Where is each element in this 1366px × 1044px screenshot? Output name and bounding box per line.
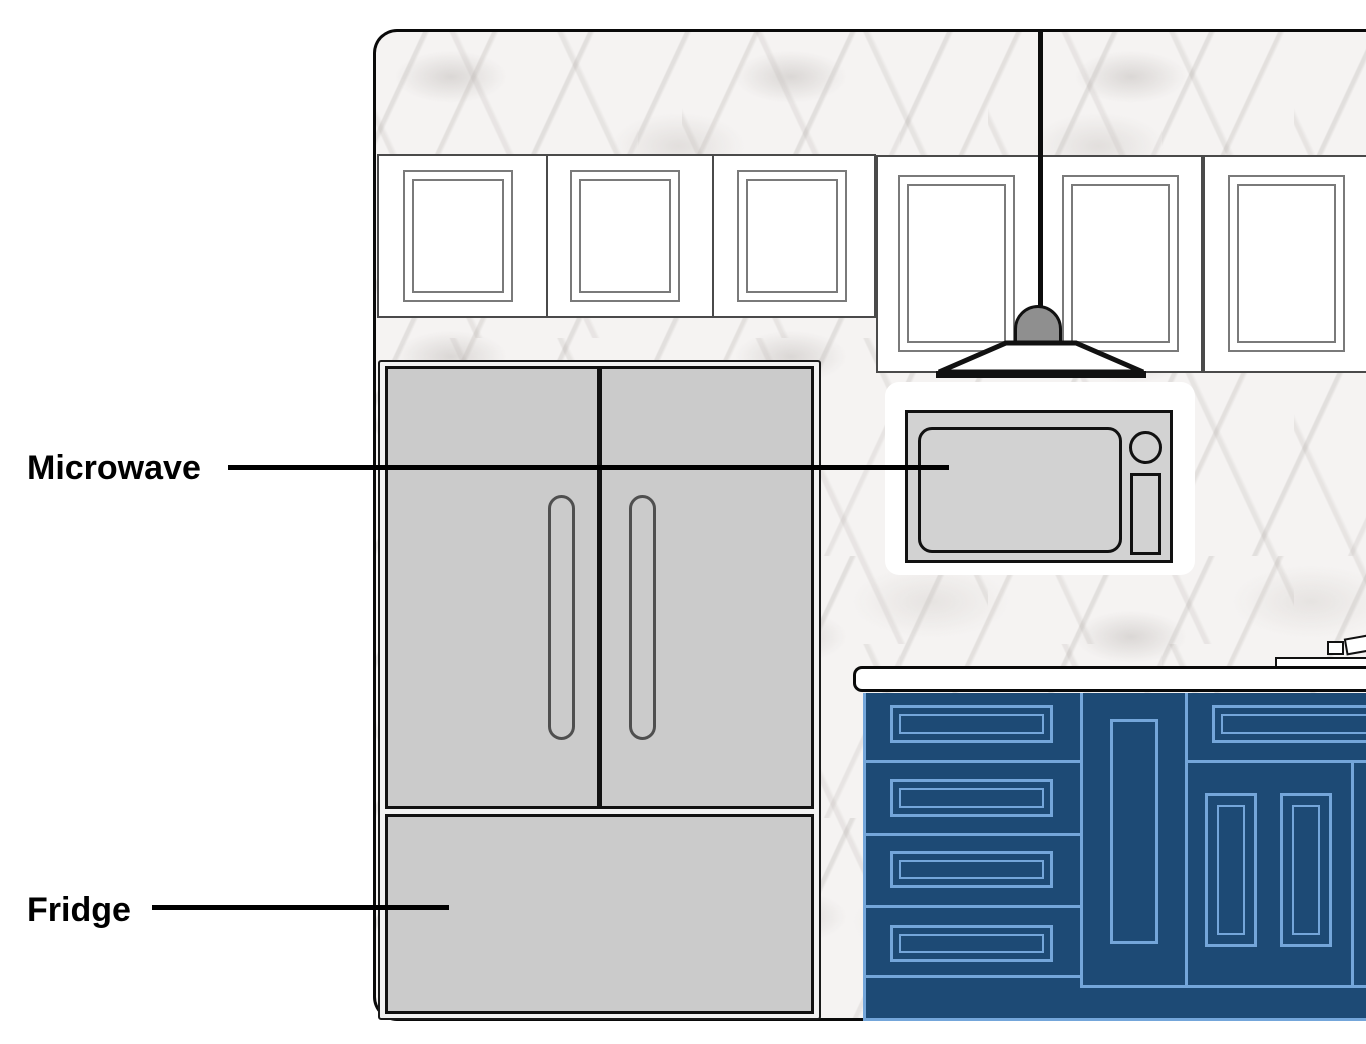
base-rail-line [1083, 985, 1366, 988]
cabinet-door-panel [1062, 175, 1179, 352]
base-cabinet-bottom-edge [863, 1018, 1366, 1021]
microwave-leader-line [228, 465, 949, 470]
drawer-front [890, 925, 1053, 962]
label-fridge: Fridge [27, 891, 131, 930]
countertop [853, 666, 1366, 692]
base-cabinet-divider [1185, 693, 1188, 988]
upper-cabinet-left-section [377, 154, 876, 318]
microwave-door [918, 427, 1122, 553]
base-cabinet-edge [863, 693, 866, 1021]
fridge-leader-line [152, 905, 449, 910]
fridge-door-divider [597, 366, 602, 809]
drawer-separator [863, 760, 1080, 763]
microwave-knob [1129, 431, 1162, 464]
cabinet-door-panel [898, 175, 1015, 352]
cabinet-door-panel [1205, 793, 1257, 947]
fridge-handle-right [629, 495, 656, 740]
microwave-control-panel [1130, 473, 1161, 555]
base-cabinets [863, 693, 1366, 1021]
stile-panel [1110, 719, 1158, 944]
pendant-shade [936, 339, 1146, 383]
pendant-cord [1038, 31, 1043, 307]
cabinet-divider [712, 156, 714, 316]
fridge-handle-left [548, 495, 575, 740]
drawer-separator [863, 905, 1080, 908]
cooktop-knob [1327, 641, 1344, 655]
drawer-separator [863, 833, 1080, 836]
drawer-front [1212, 705, 1366, 743]
base-cabinet-divider [1080, 693, 1083, 988]
freezer-drawer [385, 814, 814, 1014]
drawer-separator [863, 975, 1080, 978]
cabinet-door-panel [403, 170, 513, 302]
base-cabinet-door-edge [1351, 760, 1354, 985]
drawer-front [890, 779, 1053, 817]
microwave [905, 410, 1173, 563]
cabinet-divider [546, 156, 548, 316]
drawer-front [890, 705, 1053, 743]
kitchen-diagram: Microwave Fridge [0, 0, 1366, 1044]
drawer-front [890, 851, 1053, 888]
cabinet-door-panel [570, 170, 680, 302]
base-rail-line [1188, 760, 1366, 763]
fridge [378, 360, 821, 1020]
cabinet-door-panel [1228, 175, 1345, 352]
label-microwave: Microwave [27, 449, 201, 488]
upper-cabinet-right-section [1203, 155, 1366, 373]
cabinet-door-panel [1280, 793, 1332, 947]
cabinet-door-panel [737, 170, 847, 302]
